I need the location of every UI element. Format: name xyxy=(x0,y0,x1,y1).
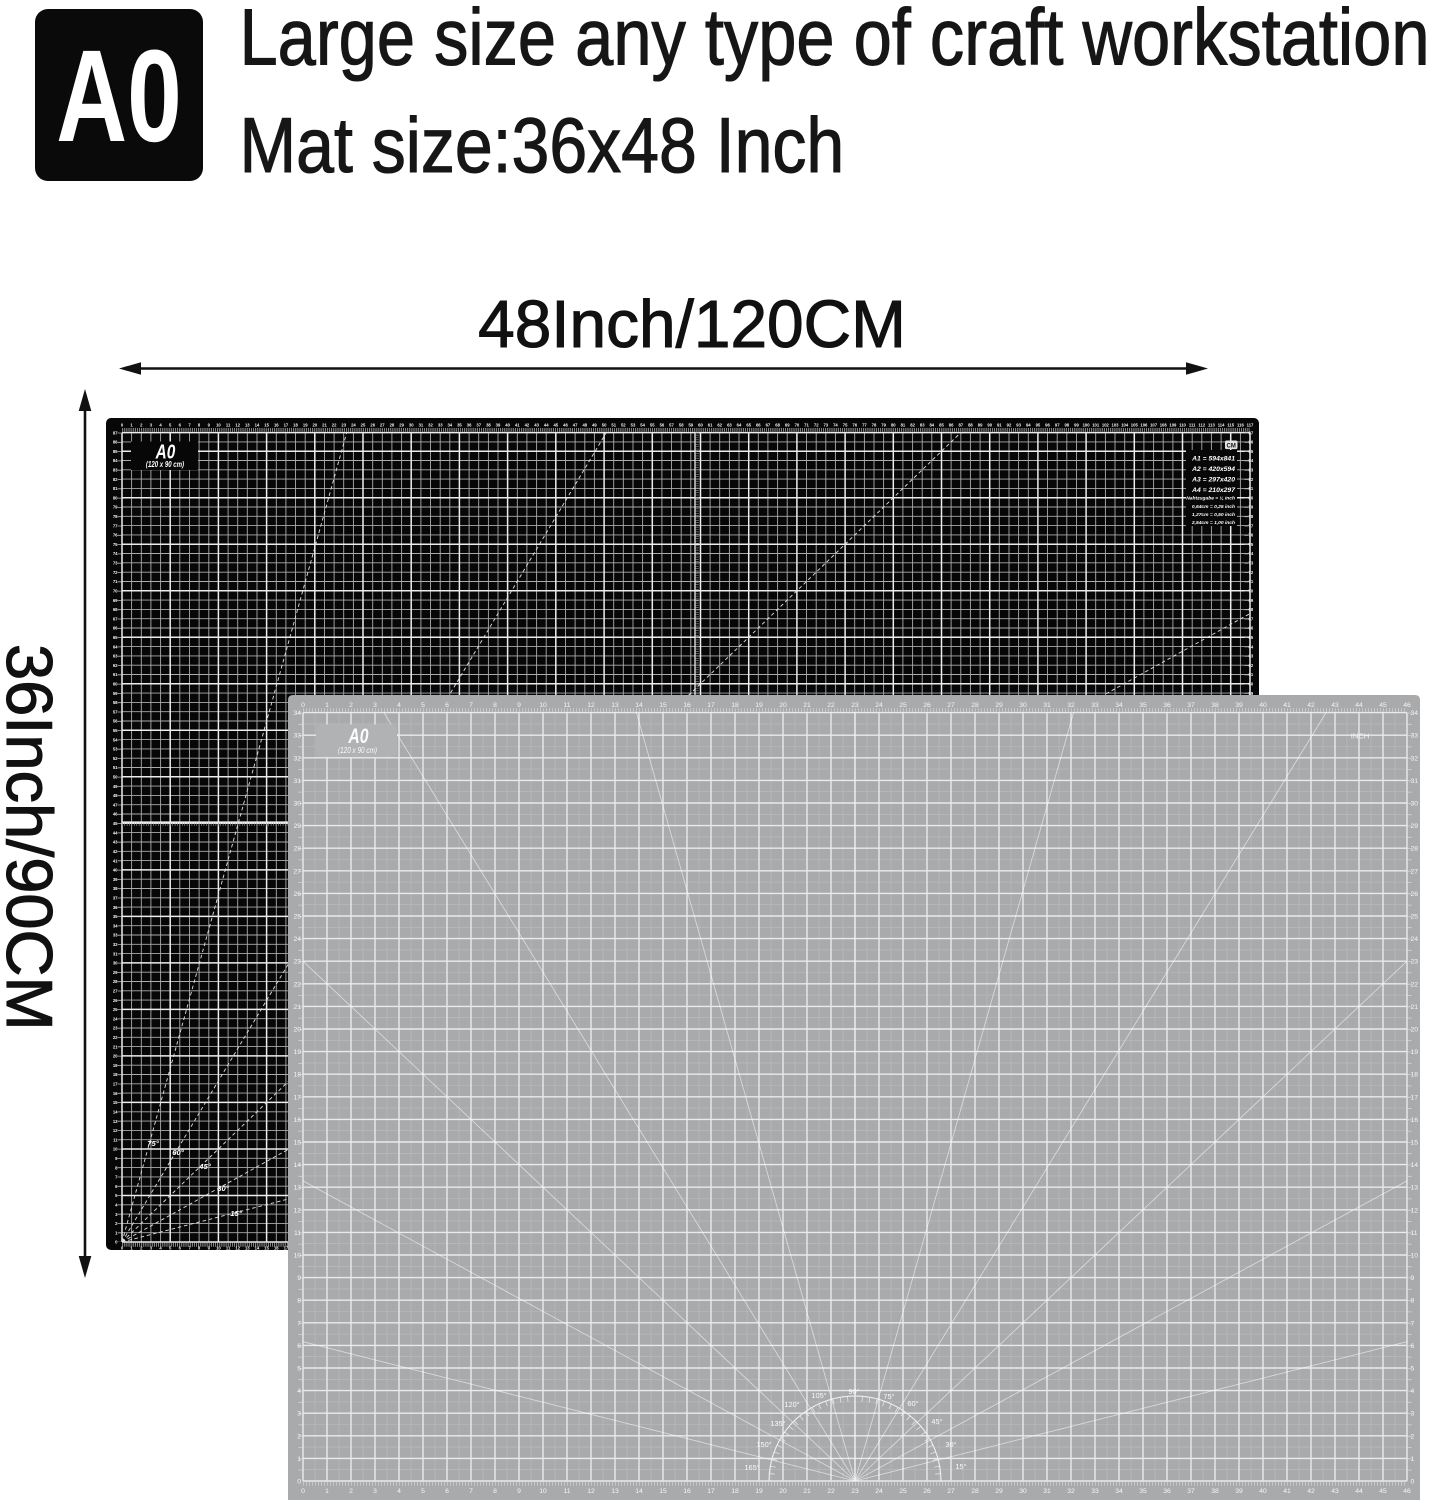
svg-text:35: 35 xyxy=(1139,702,1147,709)
svg-text:13: 13 xyxy=(245,1245,250,1250)
svg-text:23: 23 xyxy=(113,1026,118,1031)
svg-text:8: 8 xyxy=(493,702,497,709)
svg-text:135°: 135° xyxy=(770,1419,785,1428)
svg-text:48: 48 xyxy=(113,793,118,798)
svg-text:85: 85 xyxy=(113,449,118,454)
svg-text:43: 43 xyxy=(113,840,118,845)
svg-text:51: 51 xyxy=(113,765,118,770)
svg-text:24: 24 xyxy=(113,1016,118,1021)
svg-text:0: 0 xyxy=(301,702,305,709)
svg-text:14: 14 xyxy=(293,1162,301,1169)
svg-text:109: 109 xyxy=(1169,422,1177,427)
svg-text:15: 15 xyxy=(293,1140,301,1147)
svg-text:72: 72 xyxy=(113,570,118,575)
svg-text:44: 44 xyxy=(544,422,549,427)
svg-text:73: 73 xyxy=(1249,561,1254,566)
svg-text:99: 99 xyxy=(1074,422,1079,427)
svg-text:31: 31 xyxy=(419,422,424,427)
svg-text:60: 60 xyxy=(113,682,118,687)
svg-text:29: 29 xyxy=(399,422,404,427)
svg-text:42: 42 xyxy=(525,422,530,427)
svg-text:56: 56 xyxy=(660,422,665,427)
svg-text:120°: 120° xyxy=(784,1400,799,1409)
svg-text:78: 78 xyxy=(113,514,118,519)
svg-text:66: 66 xyxy=(113,626,118,631)
svg-text:79: 79 xyxy=(881,422,886,427)
svg-text:104: 104 xyxy=(1121,422,1129,427)
svg-text:30: 30 xyxy=(1019,1488,1027,1495)
svg-text:21: 21 xyxy=(803,702,811,709)
svg-text:22: 22 xyxy=(827,702,835,709)
svg-text:56: 56 xyxy=(113,719,118,724)
svg-text:88: 88 xyxy=(968,422,973,427)
svg-text:77: 77 xyxy=(113,523,118,528)
svg-text:22: 22 xyxy=(332,422,337,427)
svg-text:1,27cm = 0,50 inch: 1,27cm = 0,50 inch xyxy=(1192,512,1235,518)
svg-text:5: 5 xyxy=(421,1488,425,1495)
svg-text:33: 33 xyxy=(113,933,118,938)
svg-text:18: 18 xyxy=(293,1072,301,1079)
svg-text:47: 47 xyxy=(113,802,118,807)
svg-text:41: 41 xyxy=(1283,702,1291,709)
svg-text:13: 13 xyxy=(245,422,250,427)
svg-text:10: 10 xyxy=(1411,1253,1419,1260)
svg-text:86: 86 xyxy=(113,440,118,445)
svg-text:87: 87 xyxy=(113,430,118,435)
svg-text:85: 85 xyxy=(939,422,944,427)
svg-text:19: 19 xyxy=(303,422,308,427)
svg-text:52: 52 xyxy=(621,422,626,427)
svg-text:34: 34 xyxy=(1411,710,1419,717)
svg-text:116: 116 xyxy=(1237,422,1244,427)
svg-text:44: 44 xyxy=(1355,1488,1363,1495)
svg-text:28: 28 xyxy=(293,846,301,853)
svg-text:69: 69 xyxy=(785,422,790,427)
svg-text:25: 25 xyxy=(361,422,366,427)
svg-text:Nahtzugabe = ¼ inch: Nahtzugabe = ¼ inch xyxy=(1186,496,1235,502)
svg-text:A2 = 420x594: A2 = 420x594 xyxy=(1191,466,1235,473)
svg-text:11: 11 xyxy=(226,1245,231,1250)
svg-text:4: 4 xyxy=(297,1388,301,1395)
svg-text:83: 83 xyxy=(920,422,925,427)
svg-text:105°: 105° xyxy=(811,1391,826,1400)
svg-text:9: 9 xyxy=(297,1275,301,1282)
svg-text:26: 26 xyxy=(923,702,931,709)
svg-text:19: 19 xyxy=(755,1488,763,1495)
svg-text:9: 9 xyxy=(517,702,521,709)
svg-text:26: 26 xyxy=(923,1488,931,1495)
svg-text:45: 45 xyxy=(113,821,118,826)
svg-text:34: 34 xyxy=(1115,702,1123,709)
svg-text:80: 80 xyxy=(891,422,896,427)
svg-text:32: 32 xyxy=(1067,1488,1075,1495)
svg-text:2,54cm = 1,00 inch: 2,54cm = 1,00 inch xyxy=(1191,520,1235,526)
svg-text:64: 64 xyxy=(737,422,742,427)
svg-text:23: 23 xyxy=(293,959,301,966)
svg-text:41: 41 xyxy=(1283,1488,1291,1495)
svg-text:26: 26 xyxy=(113,998,118,1003)
svg-text:40: 40 xyxy=(505,422,510,427)
svg-text:11: 11 xyxy=(226,422,231,427)
svg-text:27: 27 xyxy=(293,868,301,875)
svg-text:49: 49 xyxy=(113,784,118,789)
svg-text:18: 18 xyxy=(731,702,739,709)
svg-text:69: 69 xyxy=(1249,598,1254,603)
svg-text:17: 17 xyxy=(707,702,715,709)
svg-text:A3 = 297x420: A3 = 297x420 xyxy=(1191,477,1235,484)
svg-text:108: 108 xyxy=(1160,422,1168,427)
svg-text:23: 23 xyxy=(1411,959,1419,966)
svg-text:19: 19 xyxy=(755,702,763,709)
svg-text:17: 17 xyxy=(113,1082,118,1087)
svg-text:27: 27 xyxy=(947,702,955,709)
svg-text:87: 87 xyxy=(1249,430,1254,435)
svg-text:16: 16 xyxy=(293,1117,301,1124)
svg-text:85: 85 xyxy=(1249,449,1254,454)
svg-text:37: 37 xyxy=(1187,1488,1195,1495)
svg-text:42: 42 xyxy=(1307,702,1315,709)
svg-text:78: 78 xyxy=(1249,514,1254,519)
svg-text:15: 15 xyxy=(1411,1140,1419,1147)
svg-text:65: 65 xyxy=(1249,635,1254,640)
svg-text:20: 20 xyxy=(293,1027,301,1034)
svg-text:40: 40 xyxy=(113,868,118,873)
svg-text:32: 32 xyxy=(113,942,118,947)
svg-text:13: 13 xyxy=(113,1119,118,1124)
svg-text:43: 43 xyxy=(534,422,539,427)
svg-text:95: 95 xyxy=(1036,422,1041,427)
svg-text:82: 82 xyxy=(113,477,118,482)
svg-text:14: 14 xyxy=(255,1245,260,1250)
svg-text:5: 5 xyxy=(1411,1366,1415,1373)
svg-text:60°: 60° xyxy=(907,1399,918,1408)
svg-text:115: 115 xyxy=(1227,422,1234,427)
svg-text:24: 24 xyxy=(351,422,356,427)
svg-text:12: 12 xyxy=(587,702,595,709)
svg-text:27: 27 xyxy=(113,989,118,994)
svg-text:67: 67 xyxy=(766,422,771,427)
svg-text:68: 68 xyxy=(1249,607,1254,612)
svg-text:2: 2 xyxy=(297,1433,301,1440)
svg-text:15°: 15° xyxy=(955,1462,966,1471)
svg-text:29: 29 xyxy=(1411,823,1419,830)
svg-text:7: 7 xyxy=(469,1488,473,1495)
svg-text:80: 80 xyxy=(113,495,118,500)
svg-text:0: 0 xyxy=(301,1488,305,1495)
svg-text:84: 84 xyxy=(113,458,118,463)
svg-text:34: 34 xyxy=(113,923,118,928)
svg-text:10: 10 xyxy=(293,1253,301,1260)
svg-text:16: 16 xyxy=(1411,1117,1419,1124)
svg-text:19: 19 xyxy=(293,1049,301,1056)
svg-text:43: 43 xyxy=(1331,702,1339,709)
svg-text:18: 18 xyxy=(113,1072,118,1077)
svg-text:90: 90 xyxy=(987,422,992,427)
svg-text:26: 26 xyxy=(370,422,375,427)
svg-text:53: 53 xyxy=(631,422,636,427)
svg-text:45: 45 xyxy=(1379,702,1387,709)
svg-text:CM: CM xyxy=(1227,443,1236,449)
svg-text:32: 32 xyxy=(1411,755,1419,762)
svg-text:1: 1 xyxy=(297,1456,301,1463)
svg-text:18: 18 xyxy=(1411,1072,1419,1079)
svg-text:61: 61 xyxy=(708,422,713,427)
svg-text:43: 43 xyxy=(1331,1488,1339,1495)
svg-text:62: 62 xyxy=(717,422,722,427)
svg-text:107: 107 xyxy=(1150,422,1158,427)
svg-text:33: 33 xyxy=(1411,733,1419,740)
svg-text:46: 46 xyxy=(563,422,568,427)
svg-text:(120 x 90 cm): (120 x 90 cm) xyxy=(338,745,378,755)
svg-text:36Inch/90CM: 36Inch/90CM xyxy=(0,644,66,1031)
svg-text:12: 12 xyxy=(235,422,240,427)
svg-text:73: 73 xyxy=(113,561,118,566)
svg-text:81: 81 xyxy=(1249,486,1254,491)
svg-text:100: 100 xyxy=(1083,422,1091,427)
svg-text:30°: 30° xyxy=(217,1184,229,1193)
svg-text:98: 98 xyxy=(1064,422,1069,427)
svg-text:58: 58 xyxy=(679,422,684,427)
svg-text:6: 6 xyxy=(297,1343,301,1350)
svg-text:2: 2 xyxy=(349,1488,353,1495)
svg-text:12: 12 xyxy=(235,1245,240,1250)
svg-text:10: 10 xyxy=(539,702,547,709)
svg-text:29: 29 xyxy=(293,823,301,830)
svg-text:9: 9 xyxy=(517,1488,521,1495)
svg-text:86: 86 xyxy=(949,422,954,427)
svg-text:27: 27 xyxy=(947,1488,955,1495)
svg-text:65: 65 xyxy=(113,635,118,640)
svg-text:63: 63 xyxy=(113,654,118,659)
svg-text:83: 83 xyxy=(1249,468,1254,473)
svg-text:63: 63 xyxy=(727,422,732,427)
svg-text:30°: 30° xyxy=(945,1440,956,1449)
svg-text:38: 38 xyxy=(1211,1488,1219,1495)
svg-text:20: 20 xyxy=(312,422,317,427)
svg-text:19: 19 xyxy=(1411,1049,1419,1056)
svg-text:3: 3 xyxy=(373,1488,377,1495)
svg-text:97: 97 xyxy=(1055,422,1060,427)
svg-text:18: 18 xyxy=(731,1488,739,1495)
svg-text:15: 15 xyxy=(264,1245,269,1250)
svg-text:22: 22 xyxy=(827,1488,835,1495)
svg-text:15: 15 xyxy=(264,422,269,427)
svg-text:25: 25 xyxy=(899,1488,907,1495)
svg-text:75°: 75° xyxy=(147,1139,159,1148)
svg-text:33: 33 xyxy=(293,733,301,740)
svg-text:86: 86 xyxy=(1249,440,1254,445)
svg-text:84: 84 xyxy=(1249,458,1254,463)
svg-text:12: 12 xyxy=(113,1128,118,1133)
svg-text:20: 20 xyxy=(779,1488,787,1495)
svg-text:45°: 45° xyxy=(931,1417,942,1426)
svg-text:77: 77 xyxy=(1249,523,1254,528)
svg-text:17: 17 xyxy=(707,1488,715,1495)
svg-text:38: 38 xyxy=(1211,702,1219,709)
svg-text:16: 16 xyxy=(113,1091,118,1096)
svg-text:15: 15 xyxy=(659,1488,667,1495)
svg-text:60: 60 xyxy=(698,422,703,427)
svg-text:80: 80 xyxy=(1249,495,1254,500)
svg-text:72: 72 xyxy=(814,422,819,427)
svg-text:20: 20 xyxy=(113,1054,118,1059)
svg-text:30: 30 xyxy=(1411,801,1419,808)
svg-text:21: 21 xyxy=(803,1488,811,1495)
svg-text:48: 48 xyxy=(582,422,587,427)
svg-text:2: 2 xyxy=(349,702,353,709)
svg-text:58: 58 xyxy=(113,700,118,705)
svg-text:72: 72 xyxy=(1249,570,1254,575)
svg-text:79: 79 xyxy=(113,505,118,510)
svg-text:38: 38 xyxy=(486,422,491,427)
svg-text:54: 54 xyxy=(640,422,645,427)
svg-text:36: 36 xyxy=(467,422,472,427)
svg-text:50: 50 xyxy=(113,775,118,780)
svg-text:6: 6 xyxy=(445,702,449,709)
svg-text:41: 41 xyxy=(515,422,520,427)
svg-text:Large size any type of craft w: Large size any type of craft workstation xyxy=(240,0,1430,82)
svg-text:17: 17 xyxy=(293,1094,301,1101)
svg-text:63: 63 xyxy=(1249,654,1254,659)
svg-text:101: 101 xyxy=(1092,422,1100,427)
svg-text:46: 46 xyxy=(1403,702,1411,709)
svg-text:114: 114 xyxy=(1218,422,1225,427)
svg-text:13: 13 xyxy=(611,702,619,709)
svg-text:67: 67 xyxy=(113,616,118,621)
svg-text:30: 30 xyxy=(113,961,118,966)
svg-text:14: 14 xyxy=(255,422,260,427)
svg-text:29: 29 xyxy=(995,1488,1003,1495)
svg-text:6: 6 xyxy=(445,1488,449,1495)
svg-text:35: 35 xyxy=(1139,1488,1147,1495)
svg-text:3: 3 xyxy=(297,1411,301,1418)
svg-text:33: 33 xyxy=(1091,1488,1099,1495)
svg-text:48Inch/120CM: 48Inch/120CM xyxy=(478,287,906,362)
svg-text:17: 17 xyxy=(1411,1094,1419,1101)
svg-text:45: 45 xyxy=(553,422,558,427)
svg-text:17: 17 xyxy=(284,422,289,427)
svg-text:11: 11 xyxy=(563,702,570,709)
svg-text:29: 29 xyxy=(995,702,1003,709)
svg-text:A4 = 210x297: A4 = 210x297 xyxy=(1191,487,1236,494)
svg-text:12: 12 xyxy=(587,1488,595,1495)
svg-text:73: 73 xyxy=(823,422,828,427)
svg-text:25: 25 xyxy=(293,914,301,921)
svg-text:113: 113 xyxy=(1208,422,1215,427)
svg-text:37: 37 xyxy=(113,896,118,901)
svg-text:8: 8 xyxy=(1411,1298,1415,1305)
svg-text:25: 25 xyxy=(1411,914,1419,921)
svg-text:64: 64 xyxy=(1249,644,1254,649)
svg-text:42: 42 xyxy=(1307,1488,1315,1495)
svg-text:15°: 15° xyxy=(230,1209,242,1218)
svg-text:52: 52 xyxy=(113,756,118,761)
svg-text:53: 53 xyxy=(113,747,118,752)
svg-text:59: 59 xyxy=(113,691,118,696)
svg-text:49: 49 xyxy=(592,422,597,427)
svg-text:7: 7 xyxy=(1411,1320,1415,1327)
svg-text:26: 26 xyxy=(1411,891,1419,898)
svg-text:23: 23 xyxy=(341,422,346,427)
svg-text:54: 54 xyxy=(113,737,118,742)
svg-text:150°: 150° xyxy=(756,1440,771,1449)
svg-text:102: 102 xyxy=(1102,422,1110,427)
svg-text:4: 4 xyxy=(1411,1388,1415,1395)
svg-text:A0: A0 xyxy=(348,724,370,748)
svg-text:77: 77 xyxy=(862,422,867,427)
svg-text:74: 74 xyxy=(833,422,838,427)
svg-text:71: 71 xyxy=(113,579,118,584)
svg-text:12: 12 xyxy=(1411,1207,1419,1214)
svg-text:50: 50 xyxy=(602,422,607,427)
svg-text:34: 34 xyxy=(1115,1488,1123,1495)
svg-text:165°: 165° xyxy=(744,1463,759,1472)
svg-text:31: 31 xyxy=(293,778,301,785)
svg-text:14: 14 xyxy=(113,1110,118,1115)
svg-text:61: 61 xyxy=(113,672,118,677)
svg-text:70: 70 xyxy=(1249,589,1254,594)
svg-text:45: 45 xyxy=(1379,1488,1387,1495)
svg-text:10: 10 xyxy=(539,1488,547,1495)
svg-text:36: 36 xyxy=(113,905,118,910)
svg-text:111: 111 xyxy=(1189,422,1196,427)
svg-text:15: 15 xyxy=(113,1100,118,1105)
svg-text:4: 4 xyxy=(397,702,401,709)
svg-text:11: 11 xyxy=(563,1488,570,1495)
svg-text:70: 70 xyxy=(795,422,800,427)
svg-text:10: 10 xyxy=(113,1147,118,1152)
svg-text:24: 24 xyxy=(293,936,301,943)
svg-text:75°: 75° xyxy=(883,1392,894,1401)
svg-text:87: 87 xyxy=(958,422,963,427)
svg-text:4: 4 xyxy=(397,1488,401,1495)
svg-text:46: 46 xyxy=(1403,1488,1411,1495)
svg-text:13: 13 xyxy=(611,1488,619,1495)
svg-text:47: 47 xyxy=(573,422,578,427)
svg-text:27: 27 xyxy=(380,422,385,427)
svg-text:22: 22 xyxy=(1411,981,1419,988)
svg-text:10: 10 xyxy=(216,422,221,427)
svg-text:23: 23 xyxy=(851,702,859,709)
svg-text:35: 35 xyxy=(113,914,118,919)
svg-text:36: 36 xyxy=(1163,702,1171,709)
svg-text:21: 21 xyxy=(1411,1004,1419,1011)
svg-text:76: 76 xyxy=(1249,533,1254,538)
svg-text:39: 39 xyxy=(1235,1488,1243,1495)
svg-text:74: 74 xyxy=(1249,551,1254,556)
svg-text:A0: A0 xyxy=(56,22,182,169)
svg-text:23: 23 xyxy=(851,1488,859,1495)
svg-text:28: 28 xyxy=(1411,846,1419,853)
svg-text:33: 33 xyxy=(1091,702,1099,709)
svg-text:INCH: INCH xyxy=(1351,732,1370,741)
svg-text:55: 55 xyxy=(113,728,118,733)
svg-text:37: 37 xyxy=(476,422,481,427)
svg-text:9: 9 xyxy=(1411,1275,1415,1282)
svg-text:110: 110 xyxy=(1179,422,1186,427)
svg-text:74: 74 xyxy=(113,551,118,556)
svg-text:Mat size:36x48 Inch: Mat size:36x48 Inch xyxy=(240,102,845,189)
svg-text:35: 35 xyxy=(457,422,462,427)
svg-text:70: 70 xyxy=(113,589,118,594)
svg-text:60: 60 xyxy=(1249,682,1254,687)
svg-text:36: 36 xyxy=(1163,1488,1171,1495)
svg-text:64: 64 xyxy=(113,644,118,649)
svg-text:A1 = 594x841: A1 = 594x841 xyxy=(1191,455,1235,462)
svg-text:34: 34 xyxy=(447,422,452,427)
svg-text:66: 66 xyxy=(756,422,761,427)
svg-text:2: 2 xyxy=(1411,1433,1415,1440)
